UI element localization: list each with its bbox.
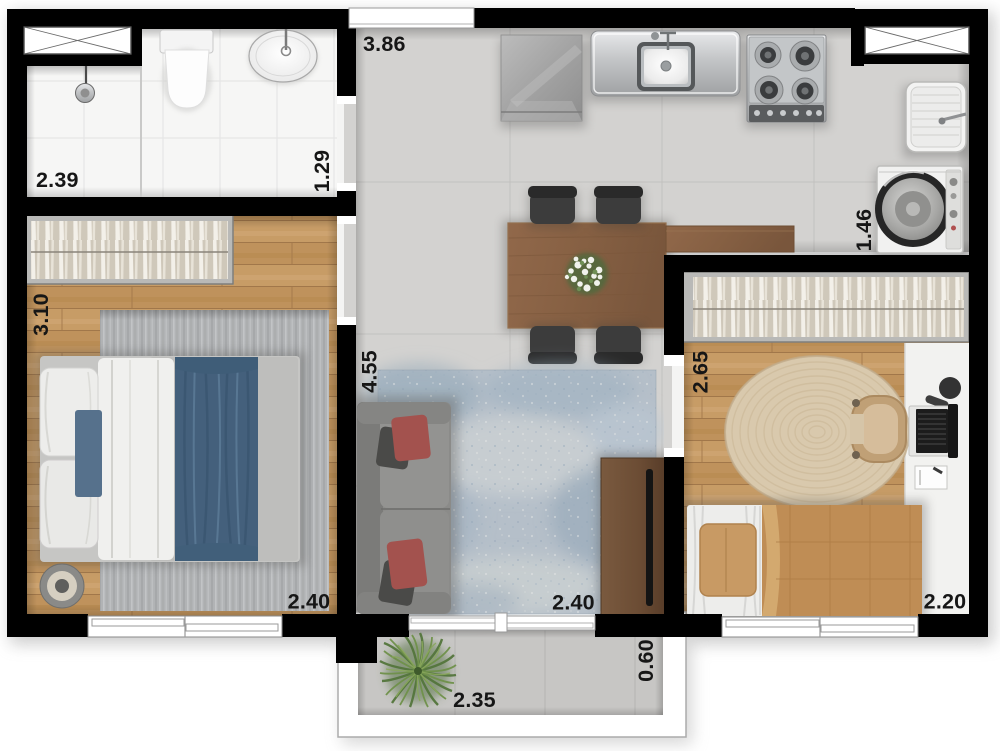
- svg-text:2.35: 2.35: [453, 688, 496, 712]
- svg-text:3.86: 3.86: [363, 32, 406, 56]
- svg-text:2.39: 2.39: [36, 168, 79, 192]
- svg-text:2.40: 2.40: [288, 590, 331, 614]
- svg-text:1.46: 1.46: [852, 209, 876, 252]
- svg-text:2.20: 2.20: [924, 590, 967, 614]
- svg-text:3.10: 3.10: [29, 293, 53, 336]
- svg-text:1.29: 1.29: [310, 150, 334, 193]
- svg-text:2.40: 2.40: [552, 591, 595, 615]
- svg-text:0.60: 0.60: [634, 639, 658, 682]
- svg-text:2.65: 2.65: [689, 351, 713, 394]
- svg-text:4.55: 4.55: [358, 350, 382, 393]
